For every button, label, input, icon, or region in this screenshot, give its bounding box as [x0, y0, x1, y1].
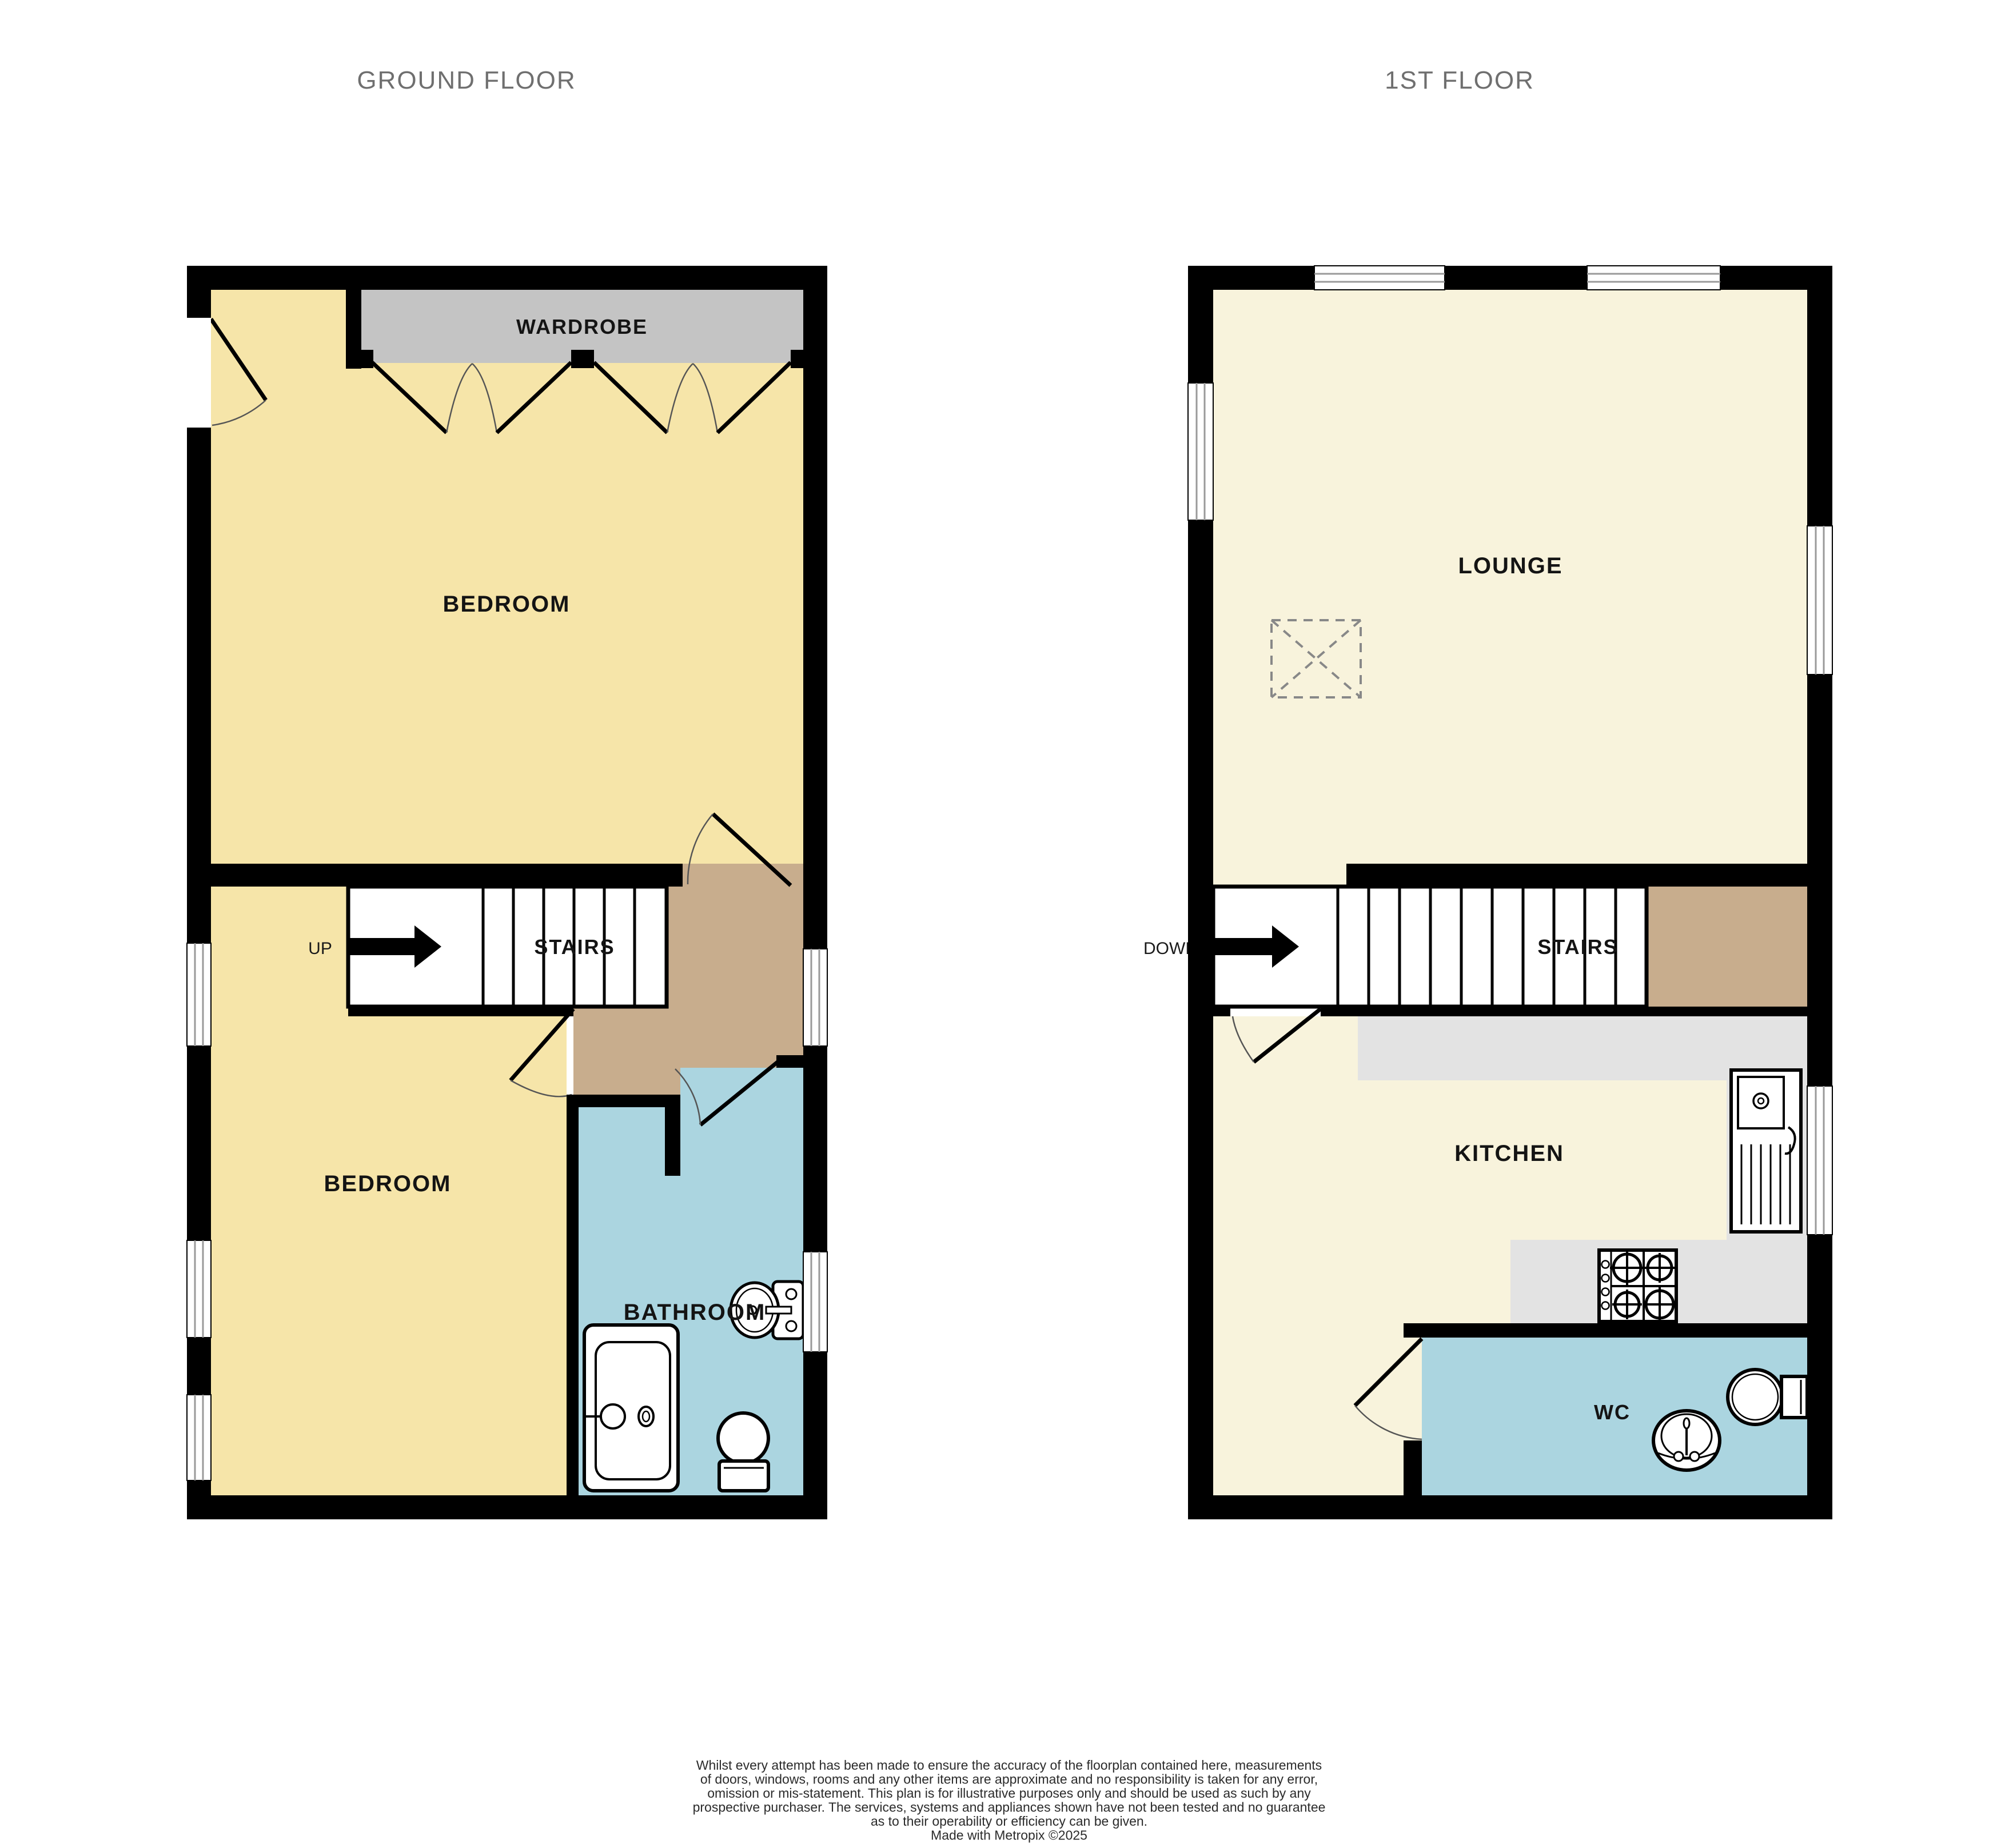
disclaimer-line: as to their operability or efficiency ca…: [871, 1814, 1147, 1829]
landing-floor: [667, 887, 803, 1007]
wall-segment: [1346, 864, 1832, 887]
ground-floor-title: GROUND FLOOR: [357, 66, 576, 94]
disclaimer-line: Whilst every attempt has been made to en…: [696, 1758, 1322, 1773]
wall-segment: [187, 266, 827, 290]
floorplan-page: GROUND FLOOR 1ST FLOOR: [0, 0, 2005, 1848]
first-floor-title: 1ST FLOOR: [1385, 66, 1534, 94]
ground-floor-plan: WARDROBE BEDROOM UP STAIRS BEDROOM BATHR…: [187, 266, 827, 1519]
toilet-icon: [1728, 1370, 1807, 1424]
stairs-label: STAIRS: [1537, 935, 1618, 959]
window: [1807, 1086, 1832, 1235]
window: [187, 943, 211, 1046]
window: [1314, 266, 1445, 290]
wardrobe-label: WARDROBE: [516, 315, 648, 338]
bathtub-icon: [584, 1325, 678, 1491]
disclaimer-line: prospective purchaser. The services, sys…: [693, 1800, 1326, 1815]
wall-segment: [567, 1095, 680, 1107]
wall-segment: [776, 1055, 803, 1068]
landing-floor: [573, 1007, 680, 1095]
window: [803, 1252, 827, 1352]
bathroom-label: BATHROOM: [624, 1300, 766, 1325]
window: [1807, 526, 1832, 674]
window: [187, 1395, 211, 1480]
room-bathroom-floor: [680, 1068, 803, 1107]
stairs-label: STAIRS: [534, 935, 615, 959]
first-floor-plan: LOUNGE DOWN STAIRS KITCHEN WC: [1143, 266, 1832, 1519]
wall-segment: [187, 1495, 827, 1519]
wall-segment: [1188, 1495, 1832, 1519]
wall-segment: [346, 266, 361, 369]
floorplan-canvas: GROUND FLOOR 1ST FLOOR: [0, 0, 2005, 1848]
wall-segment: [665, 1107, 680, 1176]
bedroom-bottom-label: BEDROOM: [324, 1171, 452, 1196]
metropix-credit: Made with Metropix ©2025: [931, 1828, 1087, 1843]
wall-segment: [1188, 266, 1832, 290]
bedroom-top-label: BEDROOM: [443, 592, 571, 617]
wall-segment: [211, 864, 683, 887]
disclaimer: Whilst every attempt has been made to en…: [693, 1758, 1326, 1843]
door-opening: [187, 318, 211, 428]
landing-floor: [1647, 887, 1807, 1007]
wall-segment: [1213, 1007, 1230, 1016]
window: [187, 1240, 211, 1338]
disclaimer-line: of doors, windows, rooms and any other i…: [700, 1772, 1318, 1787]
window: [1188, 383, 1213, 520]
window: [803, 949, 827, 1046]
window: [1587, 266, 1720, 290]
wall-segment: [567, 1095, 579, 1495]
stairs-up-label: UP: [308, 939, 332, 958]
lounge-label: LOUNGE: [1458, 553, 1562, 578]
kitchen-sink-icon: [1731, 1070, 1801, 1232]
room-lounge-floor: [1213, 864, 1346, 887]
wc-label: WC: [1594, 1400, 1631, 1424]
hob-icon: [1599, 1250, 1677, 1322]
landing-floor: [683, 864, 803, 887]
ground-stairs: [348, 887, 667, 1007]
wc-basin-icon: [1653, 1411, 1720, 1470]
kitchen-label: KITCHEN: [1454, 1141, 1564, 1166]
toilet-icon: [718, 1413, 768, 1491]
wall-segment: [1404, 1323, 1832, 1338]
wall-segment: [1321, 1007, 1832, 1016]
room-bedroom-top-floor: [211, 290, 803, 887]
disclaimer-line: omission or mis-statement. This plan is …: [707, 1786, 1311, 1801]
wall-segment: [1404, 1440, 1422, 1495]
wall-segment: [348, 1007, 573, 1016]
